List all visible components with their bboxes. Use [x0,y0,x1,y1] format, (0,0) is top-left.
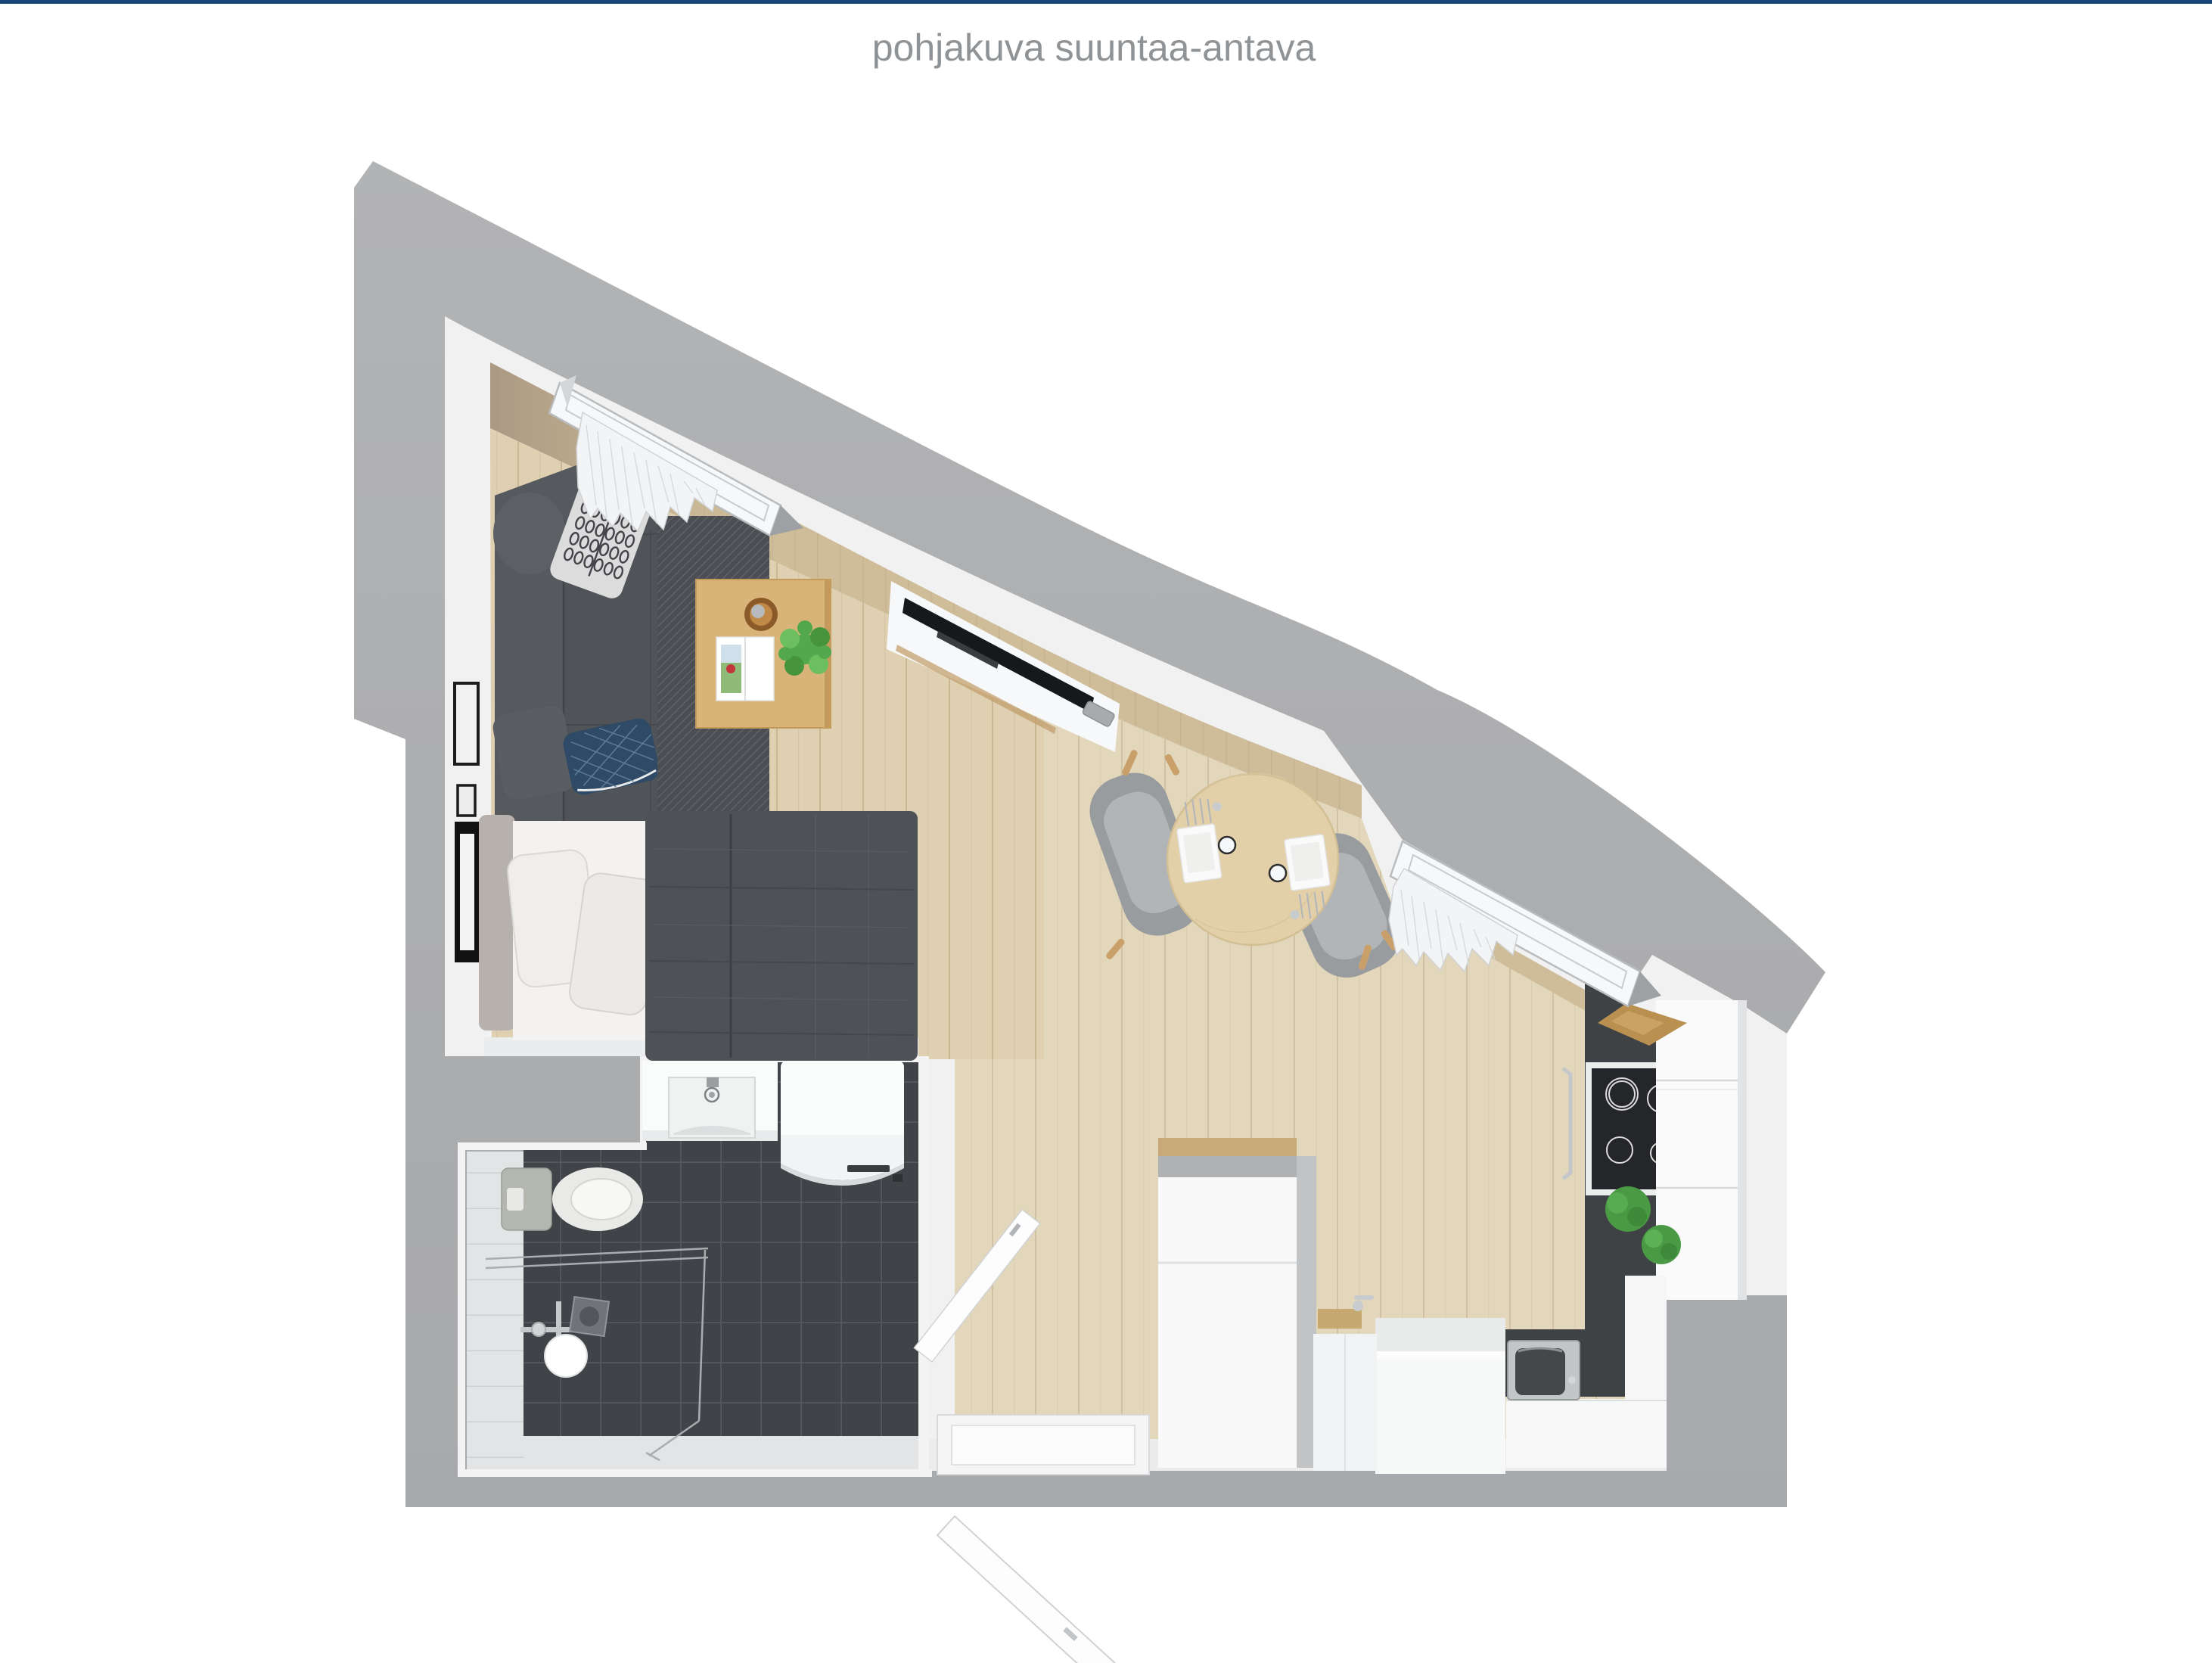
svg-text:pohjakuva suuntaa-antava: pohjakuva suuntaa-antava [872,26,1316,69]
